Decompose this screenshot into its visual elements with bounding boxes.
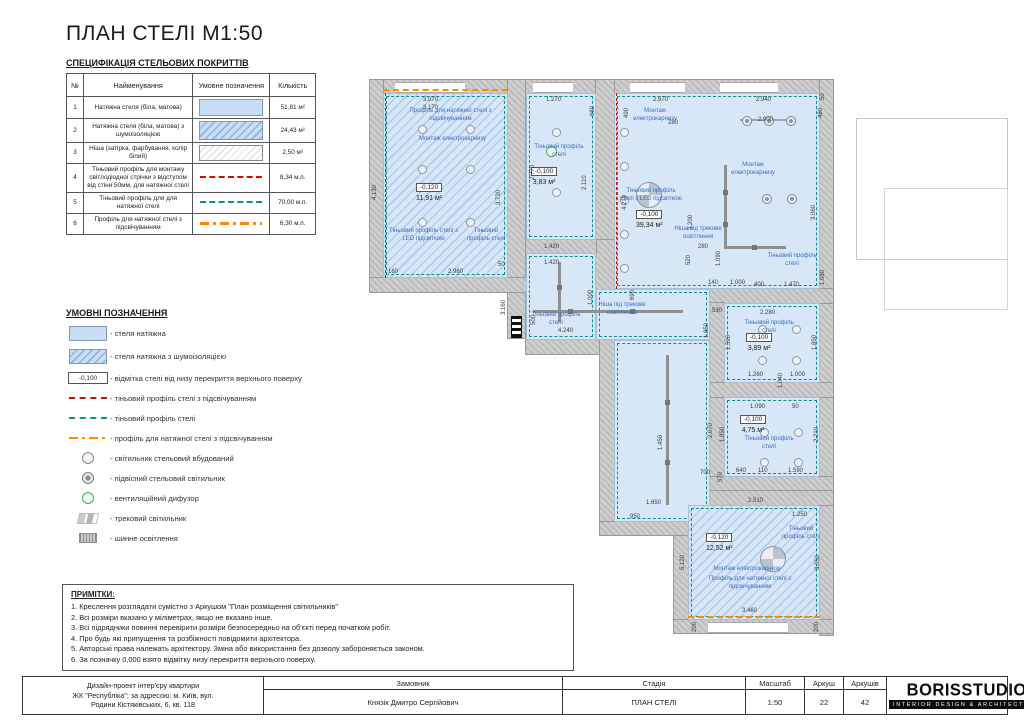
window bbox=[630, 82, 685, 93]
spec-row-swatch bbox=[193, 143, 270, 164]
elev-box-icon: -0,100 bbox=[66, 372, 110, 384]
logo-text: BORISSTUDIO bbox=[907, 681, 1024, 699]
dimension-label: 1.000 bbox=[730, 280, 745, 286]
annotation-label: Тіньовий профіль стелі з LED підсвіткою bbox=[620, 188, 682, 203]
ceiling-plain-icon bbox=[66, 326, 110, 341]
dimension-label: 700 bbox=[700, 470, 710, 476]
dimension-label: 1.000 bbox=[790, 372, 805, 378]
dimension-label: 3.160 bbox=[501, 300, 507, 315]
dimension-label: 2.510 bbox=[748, 498, 763, 504]
orange-dashdot-icon bbox=[69, 437, 107, 440]
dimension-label: 2.770 bbox=[530, 165, 536, 180]
wall bbox=[820, 80, 833, 635]
track-icon bbox=[77, 513, 99, 524]
spec-table-section: СПЕЦИФІКАЦІЯ СТЕЛЬОВИХ ПОКРИТТІВ №Наймен… bbox=[66, 58, 318, 235]
downlight bbox=[466, 218, 475, 227]
track-light-rail bbox=[666, 355, 669, 505]
dimension-label: 3.730 bbox=[496, 190, 502, 205]
dimension-label: 50 bbox=[820, 93, 826, 100]
wall bbox=[370, 278, 526, 292]
dimension-label: 1.850 bbox=[812, 335, 818, 350]
downlight bbox=[418, 165, 427, 174]
legend-item-label: - стеля натяжна з шумоізоляцією bbox=[110, 352, 226, 361]
dimension-label: 570 bbox=[718, 472, 724, 482]
dimension-label: 3.050 bbox=[815, 555, 821, 570]
downlight bbox=[620, 230, 629, 239]
ceiling-noise-icon bbox=[66, 349, 110, 364]
diffuser-icon bbox=[66, 492, 110, 504]
page-title: ПЛАН СТЕЛІ М1:50 bbox=[66, 22, 263, 46]
annotation-label: Ніша під трекове освітлення bbox=[666, 226, 730, 241]
downlight bbox=[792, 356, 801, 365]
dimension-label: 690 bbox=[630, 290, 636, 300]
ceiling-elevation-mark: -0,100 bbox=[740, 415, 766, 424]
spec-row: 1Натяжна стеля (біла, матова)51,81 м² bbox=[67, 97, 316, 119]
room-tag: -0,10039,34 м² bbox=[636, 203, 663, 229]
annotation-label: Монтаж електрокарнизу bbox=[704, 566, 790, 574]
legend-item: - трековий світильник bbox=[66, 512, 366, 524]
dimension-label: 640 bbox=[736, 468, 746, 474]
dimension-label: 4.130 bbox=[372, 185, 378, 200]
spec-row-swatch bbox=[193, 164, 270, 193]
dimension-label: 5.120 bbox=[680, 555, 686, 570]
room-area-label: 11,91 м² bbox=[416, 195, 442, 202]
teal-dashed-swatch bbox=[200, 201, 262, 203]
red-dashed-icon bbox=[69, 397, 107, 399]
room-area-label: 39,34 м² bbox=[636, 222, 663, 229]
pendant-light bbox=[787, 194, 797, 204]
spec-row-no: 2 bbox=[67, 119, 84, 143]
red-dashed-swatch bbox=[200, 176, 262, 178]
room-area-label: 3,83 м² bbox=[531, 179, 557, 186]
dimension-label: 1.080 bbox=[820, 270, 826, 285]
track-node bbox=[752, 245, 757, 250]
spec-row-swatch bbox=[193, 214, 270, 235]
room-tag: -0,12011,91 м² bbox=[416, 176, 442, 202]
annotation-label: Ніша під трекове освітлення bbox=[588, 302, 656, 317]
dimension-label: 480 bbox=[818, 108, 824, 118]
spec-row-qty: 51,81 м² bbox=[270, 97, 316, 119]
spec-row: 4Тіньовий профіль для монтажу світлодіод… bbox=[67, 164, 316, 193]
spec-row-name: Профіль для натяжної стелі з підсвічуван… bbox=[84, 214, 193, 235]
title-block: Дизайн-проект інтер'єру квартири ЖК "Рес… bbox=[22, 676, 1008, 715]
annotation-label: Профіль для натяжної стелі з підсвічуван… bbox=[403, 108, 498, 123]
spec-row-swatch bbox=[193, 193, 270, 214]
dimension-label: 280 bbox=[698, 244, 708, 250]
downlight bbox=[552, 128, 561, 137]
stage-cell: Стадія ПЛАН СТЕЛІ bbox=[563, 677, 746, 714]
dimension-label: 520 bbox=[686, 255, 692, 265]
ceiling-plan: -0,12011,91 м²-0,1003,83 м²-0,10039,34 м… bbox=[368, 70, 850, 650]
spec-row-no: 3 bbox=[67, 143, 84, 164]
dimension-label: 660 bbox=[590, 106, 596, 116]
spec-row-name: Натяжна стеля (біла, матова) з шумоізоля… bbox=[84, 119, 193, 143]
window bbox=[720, 82, 778, 93]
scale-label: Масштаб bbox=[746, 677, 804, 690]
spec-row-name: Тіньовий профіль для для натяжної стелі bbox=[84, 193, 193, 214]
legend-item: - вентиляційний дифузор bbox=[66, 492, 366, 504]
ceiling-elevation-mark: -0,120 bbox=[416, 183, 442, 192]
dimension-label: 3.070 bbox=[423, 97, 438, 103]
spec-col-header: Умовне позначення bbox=[193, 74, 270, 97]
spec-row-qty: 8,34 м.п. bbox=[270, 164, 316, 193]
legend-item: - тіньовий профіль стелі з підсвічування… bbox=[66, 392, 366, 404]
spec-row-no: 6 bbox=[67, 214, 84, 235]
spec-row-name: Натяжна стеля (біла, матова) bbox=[84, 97, 193, 119]
legend-item-label: - шинне освітлення bbox=[110, 534, 178, 543]
wall bbox=[710, 289, 833, 303]
dimension-label: 1.850 bbox=[720, 427, 726, 442]
annotation-label: Тіньовий профіль стелі bbox=[744, 436, 794, 451]
downlight bbox=[794, 428, 803, 437]
dimension-label: 3.460 bbox=[742, 608, 757, 614]
project-line: ЖК "Республіка"; за адресою: м. Київ, ву… bbox=[23, 691, 263, 701]
room-area-label: 4,75 м² bbox=[740, 427, 766, 434]
dimension-label: 1.420 bbox=[544, 260, 559, 266]
orange-dashdot-icon bbox=[66, 437, 110, 440]
legend-item-label: - стеля натяжна bbox=[110, 329, 166, 338]
orange-dashdot-swatch bbox=[200, 222, 262, 225]
dimension-label: 950 bbox=[630, 514, 640, 520]
spec-row-qty: 70,00 м.п. bbox=[270, 193, 316, 214]
project-line: Дизайн-проект інтер'єру квартири bbox=[23, 681, 263, 691]
spec-col-header: № bbox=[67, 74, 84, 97]
led-shadow-profile-line bbox=[385, 93, 386, 278]
balcony-outline-inner bbox=[884, 188, 1008, 310]
project-info: Дизайн-проект інтер'єру квартири ЖК "Рес… bbox=[23, 677, 264, 714]
backlit-profile-line bbox=[688, 616, 820, 618]
legend-item: - стеля натяжна bbox=[66, 326, 366, 341]
logo-subtext: INTERIOR DESIGN & ARCHITECTURE bbox=[889, 700, 1024, 709]
ceiling-plain-icon bbox=[69, 326, 107, 341]
downlight-icon bbox=[82, 452, 94, 464]
led-shadow-profile-line bbox=[616, 93, 617, 289]
elev-box-icon: -0,100 bbox=[68, 372, 108, 384]
dimension-label: 3.200 bbox=[688, 215, 694, 230]
legend-item-label: - трековий світильник bbox=[110, 514, 186, 523]
spec-row-no: 5 bbox=[67, 193, 84, 214]
dimension-label: 1.470 bbox=[784, 282, 799, 288]
dimension-label: 4.240 bbox=[558, 328, 573, 334]
sheet-cell: Аркуш 22 bbox=[805, 677, 844, 714]
project-line: Родини Кістяківських, 6, кв. 118 bbox=[23, 700, 263, 710]
legend-item: -0,100- відмітка стелі від низу перекрит… bbox=[66, 372, 366, 384]
spec-row-name: Ніша (затірка, фарбування, колір білий) bbox=[84, 143, 193, 164]
wall bbox=[710, 477, 833, 491]
teal-dashed-icon bbox=[66, 417, 110, 419]
pendant-light bbox=[762, 194, 772, 204]
dimension-label: 2.960 bbox=[448, 269, 463, 275]
spec-row-swatch bbox=[193, 97, 270, 119]
downlight-icon bbox=[66, 452, 110, 464]
dimension-label: 2.280 bbox=[760, 310, 775, 316]
window bbox=[395, 82, 465, 93]
sheet-label: Аркуш bbox=[805, 677, 843, 690]
track-node bbox=[665, 400, 670, 405]
wall bbox=[508, 80, 525, 338]
client-label: Замовник bbox=[264, 677, 562, 690]
spec-row-name: Тіньовий профіль для монтажу світлодіодн… bbox=[84, 164, 193, 193]
dimension-label: 50 bbox=[498, 262, 505, 268]
sheets-value: 42 bbox=[844, 690, 886, 714]
spec-row-no: 4 bbox=[67, 164, 84, 193]
room-fill-soundproof bbox=[688, 505, 820, 620]
legend-section: УМОВНІ ПОЗНАЧЕННЯ - стеля натяжна- стеля… bbox=[66, 308, 366, 544]
annotation-label: Тіньовий профіль стелі bbox=[464, 228, 508, 243]
spec-row: 2Натяжна стеля (біла, матова) з шумоізол… bbox=[67, 119, 316, 143]
dimension-label: 2.210 bbox=[814, 427, 820, 442]
spec-row-swatch bbox=[193, 119, 270, 143]
downlight bbox=[794, 458, 803, 467]
legend-item-label: - тіньовий профіль стелі з підсвічування… bbox=[110, 394, 256, 403]
client-value: Князік Дмитро Сергійович bbox=[264, 690, 562, 714]
wall bbox=[596, 80, 614, 240]
wall bbox=[600, 340, 614, 522]
dimension-label: 2.970 bbox=[653, 97, 668, 103]
sheet-value: 22 bbox=[805, 690, 843, 714]
legend-item: - світильник стельовий вбудований bbox=[66, 452, 366, 464]
spec-row-qty: 6,30 м.п. bbox=[270, 214, 316, 235]
dimension-label: 530 bbox=[712, 308, 722, 314]
dimension-label: 1.650 bbox=[646, 500, 661, 506]
legend-item: - профіль для натяжної стелі з підсвічув… bbox=[66, 432, 366, 444]
downlight bbox=[466, 165, 475, 174]
downlight bbox=[758, 356, 767, 365]
spec-table: №НайменуванняУмовне позначенняКількість … bbox=[66, 73, 316, 235]
wall bbox=[596, 240, 614, 289]
room-area-label: 12,52 м² bbox=[706, 545, 733, 552]
wall bbox=[600, 522, 688, 535]
dimension-label: 280 bbox=[668, 120, 678, 126]
spec-row: 5Тіньовий профіль для для натяжної стелі… bbox=[67, 193, 316, 214]
dimension-label: 1.090 bbox=[716, 251, 722, 266]
dimension-label: 1.040 bbox=[778, 373, 784, 388]
legend-item-label: - тіньовий профіль стелі bbox=[110, 414, 195, 423]
red-dashed-icon bbox=[66, 397, 110, 399]
pendant-icon bbox=[82, 472, 94, 484]
legend-item-label: - вентиляційний дифузор bbox=[110, 494, 199, 503]
dimension-label: 1.420 bbox=[544, 244, 559, 250]
scale-cell: Масштаб 1:50 bbox=[746, 677, 805, 714]
pendant-light bbox=[742, 116, 752, 126]
downlight bbox=[760, 458, 769, 467]
window bbox=[533, 82, 573, 93]
legend-item: - стеля натяжна з шумоізоляцією bbox=[66, 349, 366, 364]
annotation-label: Тіньовий профіль стелі bbox=[528, 144, 590, 159]
room-tag: -0,12012,52 м² bbox=[706, 526, 733, 552]
room-fill bbox=[614, 340, 710, 522]
dimension-label: 3.170 bbox=[423, 105, 438, 111]
track-node bbox=[665, 460, 670, 465]
wall bbox=[710, 383, 833, 397]
dimension-label: 1.590 bbox=[788, 468, 803, 474]
spec-row: 6Профіль для натяжної стелі з підсвічува… bbox=[67, 214, 316, 235]
busbar-icon bbox=[66, 533, 110, 543]
dimension-label: 1.590 bbox=[726, 335, 732, 350]
room-tag: -0,1004,75 м² bbox=[740, 408, 766, 434]
dimension-label: 1.260 bbox=[748, 372, 763, 378]
dimension-label: 400 bbox=[754, 282, 764, 288]
downlight bbox=[418, 218, 427, 227]
dimension-label: 500 bbox=[531, 315, 537, 325]
legend-item-label: - світильник стельовий вбудований bbox=[110, 454, 234, 463]
spec-row-qty: 2,50 м² bbox=[270, 143, 316, 164]
downlight bbox=[466, 125, 475, 134]
dimension-label: 1.850 bbox=[704, 323, 710, 338]
diffuser-icon bbox=[82, 492, 94, 504]
dimension-label: 200 bbox=[692, 622, 698, 632]
client-cell: Замовник Князік Дмитро Сергійович bbox=[264, 677, 563, 714]
ceiling-noise-icon bbox=[69, 349, 107, 364]
downlight bbox=[620, 162, 629, 171]
dimension-label: 1.270 bbox=[546, 97, 561, 103]
pendant-icon bbox=[66, 472, 110, 484]
track-icon bbox=[66, 513, 110, 524]
note-line: 6. За позначку 0,000 взято відмітку низу… bbox=[71, 655, 565, 666]
window bbox=[708, 622, 788, 633]
scale-value: 1:50 bbox=[746, 690, 804, 714]
legend-item: - шинне освітлення bbox=[66, 532, 366, 544]
legend-title: УМОВНІ ПОЗНАЧЕННЯ bbox=[66, 308, 366, 318]
niche-hatch-swatch bbox=[199, 145, 263, 161]
downlight bbox=[620, 128, 629, 137]
wall bbox=[526, 240, 596, 253]
dimension-label: 1.450 bbox=[658, 435, 664, 450]
dimension-label: 2.110 bbox=[582, 175, 588, 190]
legend-item: - підвісний стельовий світильник bbox=[66, 472, 366, 484]
downlight bbox=[418, 125, 427, 134]
track-node bbox=[557, 285, 562, 290]
annotation-label: Монтаж електрокарнизу bbox=[720, 162, 786, 177]
legend-item-label: - підвісний стельовий світильник bbox=[110, 474, 225, 483]
dimension-label: 160 bbox=[388, 269, 398, 275]
annotation-label: Монтаж електрокарнизу bbox=[410, 136, 495, 144]
downlight bbox=[620, 264, 629, 273]
dimension-label: 1.250 bbox=[792, 512, 807, 518]
annotation-label: Тіньовий профіль стелі bbox=[766, 253, 818, 268]
dimension-label: 490 bbox=[624, 108, 630, 118]
dimension-label: 2.900 bbox=[758, 117, 773, 123]
annotation-label: Тіньовий профіль стелі bbox=[778, 526, 824, 541]
track-node bbox=[723, 190, 728, 195]
legend-item: - тіньовий профіль стелі bbox=[66, 412, 366, 424]
dimension-label: 110 bbox=[758, 468, 768, 474]
downlight bbox=[552, 188, 561, 197]
sheets-label: Аркушів bbox=[844, 677, 886, 690]
borisstudio-logo: BORISSTUDIO INTERIOR DESIGN & ARCHITECTU… bbox=[887, 677, 1024, 714]
ceiling-elevation-mark: -0,120 bbox=[706, 533, 732, 542]
dimension-label: 140 bbox=[708, 280, 718, 286]
teal-dashed-icon bbox=[69, 417, 107, 419]
dimension-label: 1.000 bbox=[588, 290, 594, 305]
busbar-icon bbox=[79, 533, 97, 543]
annotation-label: Тіньовий профіль стелі bbox=[744, 320, 794, 335]
dimension-label: 2.940 bbox=[756, 97, 771, 103]
dimension-label: 4.210 bbox=[622, 195, 628, 210]
pendant-light bbox=[786, 116, 796, 126]
dimension-label: 2.070 bbox=[708, 423, 714, 438]
spec-table-title: СПЕЦИФІКАЦІЯ СТЕЛЬОВИХ ПОКРИТТІВ bbox=[66, 58, 318, 68]
spec-row-no: 1 bbox=[67, 97, 84, 119]
spec-col-header: Кількість bbox=[270, 74, 316, 97]
dimension-label: 200 bbox=[814, 622, 820, 632]
shaft-symbol bbox=[511, 316, 522, 338]
ceiling-plain-swatch bbox=[199, 99, 263, 116]
ceiling-elevation-mark: -0,100 bbox=[636, 210, 662, 219]
spec-row: 3Ніша (затірка, фарбування, колір білий)… bbox=[67, 143, 316, 164]
spec-col-header: Найменування bbox=[84, 74, 193, 97]
room-area-label: 3,89 м² bbox=[746, 345, 772, 352]
sheets-cell: Аркушів 42 bbox=[844, 677, 887, 714]
stage-label: Стадія bbox=[563, 677, 745, 690]
dimension-label: 50 bbox=[792, 404, 799, 410]
stage-value: ПЛАН СТЕЛІ bbox=[563, 690, 745, 714]
ceiling-noise-swatch bbox=[199, 121, 263, 140]
annotation-label: Профіль для натяжної стелі з підсвічуван… bbox=[698, 576, 802, 591]
dimension-label: 3.060 bbox=[811, 205, 817, 220]
legend-item-label: - відмітка стелі від низу перекриття вер… bbox=[110, 374, 302, 383]
spec-row-qty: 24,43 м² bbox=[270, 119, 316, 143]
legend-item-label: - профіль для натяжної стелі з підсвічув… bbox=[110, 434, 273, 443]
annotation-label: Тіньовий профіль стелі з LED підсвіткою bbox=[386, 228, 461, 243]
wall bbox=[710, 491, 833, 505]
backlit-profile-line bbox=[383, 89, 508, 91]
dimension-label: 1.090 bbox=[750, 404, 765, 410]
